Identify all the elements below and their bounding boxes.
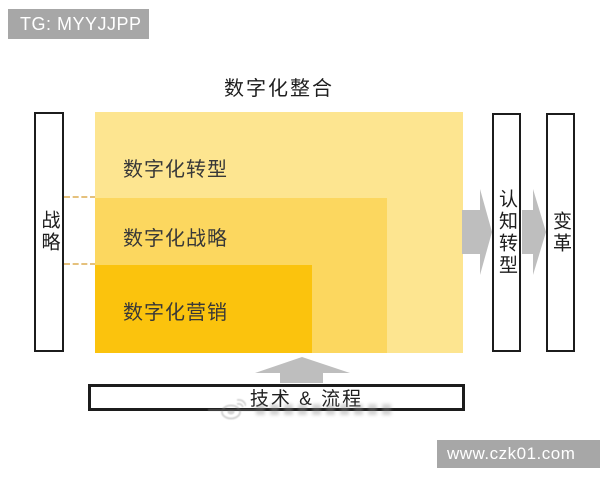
digital-marketing-rect: 数字化营销	[95, 265, 312, 353]
strategy-box: 战略	[34, 112, 64, 352]
change-label: 变革	[551, 211, 570, 255]
diagram-title: 数字化整合	[95, 72, 463, 101]
up-arrow-icon	[255, 357, 350, 383]
digital-transformation-label: 数字化转型	[123, 153, 228, 182]
dashed-connector-bottom	[64, 263, 96, 265]
right-arrow-icon	[522, 189, 546, 275]
digital-marketing-label: 数字化营销	[123, 296, 228, 325]
tg-source-label: TG: MYYJJPP	[20, 14, 142, 35]
cognition-transformation-box: 认知转型	[492, 113, 521, 352]
strategy-label: 战略	[40, 210, 59, 254]
website-label: www.czk01.com	[447, 444, 575, 464]
change-box: 变革	[546, 113, 575, 352]
dashed-connector-top	[64, 196, 96, 198]
tg-source-badge: TG: MYYJJPP	[8, 9, 149, 39]
website-badge: www.czk01.com	[437, 440, 600, 468]
weibo-watermark	[218, 396, 398, 422]
watermark-text-smudge	[256, 404, 396, 415]
watermark-strike-line	[208, 409, 258, 411]
digital-strategy-label: 数字化战略	[123, 222, 228, 251]
right-arrow-icon	[462, 189, 492, 275]
cognition-transformation-label: 认知转型	[497, 189, 516, 277]
